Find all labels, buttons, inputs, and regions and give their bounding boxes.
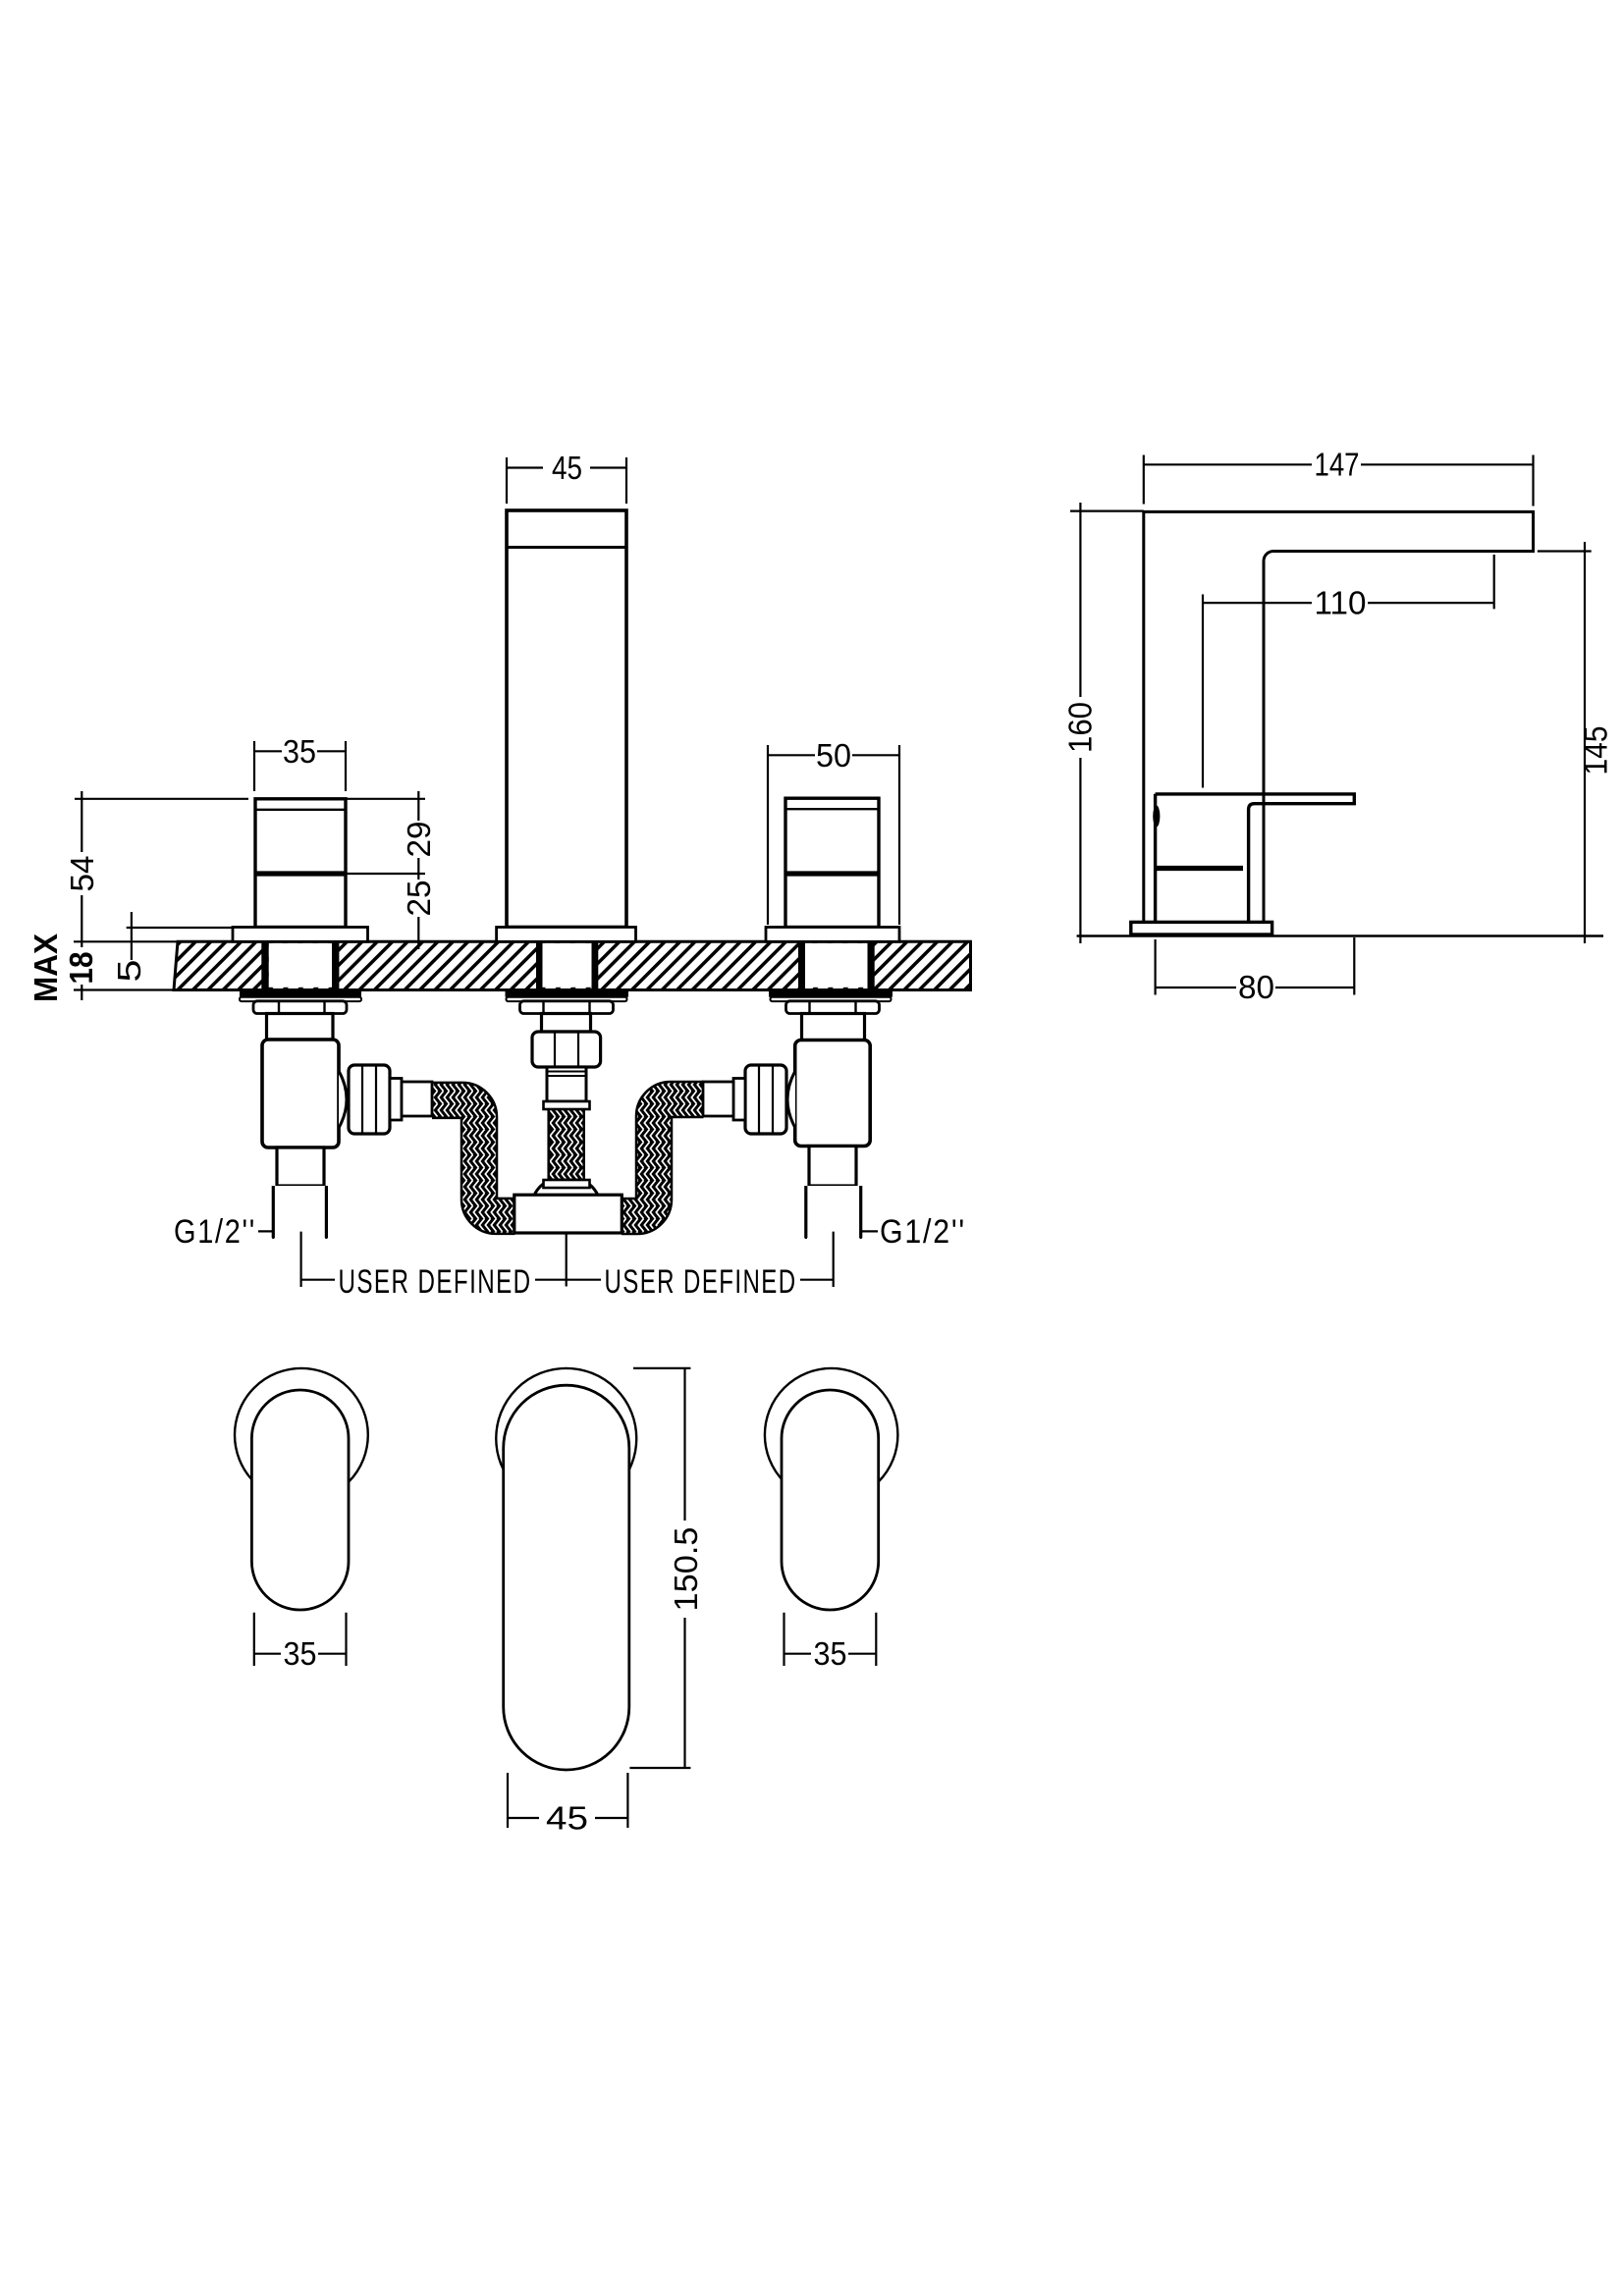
svg-text:35: 35: [814, 1635, 847, 1672]
svg-text:150.5: 150.5: [668, 1527, 704, 1612]
svg-text:25: 25: [401, 881, 437, 917]
svg-text:5: 5: [111, 960, 147, 983]
svg-text:80: 80: [1238, 969, 1274, 1005]
svg-text:G1/2'': G1/2'': [174, 1213, 256, 1251]
svg-text:29: 29: [401, 822, 437, 858]
svg-text:160: 160: [1061, 702, 1098, 753]
svg-text:G1/2'': G1/2'': [880, 1213, 966, 1251]
svg-text:145: 145: [1578, 726, 1614, 775]
svg-text:35: 35: [284, 1635, 317, 1672]
svg-text:MAX: MAX: [27, 934, 64, 1002]
svg-text:110: 110: [1315, 585, 1367, 621]
svg-text:18: 18: [63, 952, 99, 985]
svg-text:54: 54: [64, 856, 100, 892]
svg-text:35: 35: [283, 733, 316, 770]
svg-text:50: 50: [816, 737, 851, 774]
svg-text:USER DEFINED: USER DEFINED: [605, 1263, 797, 1301]
svg-text:45: 45: [552, 450, 582, 486]
svg-text:45: 45: [546, 1800, 588, 1837]
svg-text:147: 147: [1315, 447, 1360, 483]
svg-text:USER DEFINED: USER DEFINED: [339, 1263, 532, 1301]
